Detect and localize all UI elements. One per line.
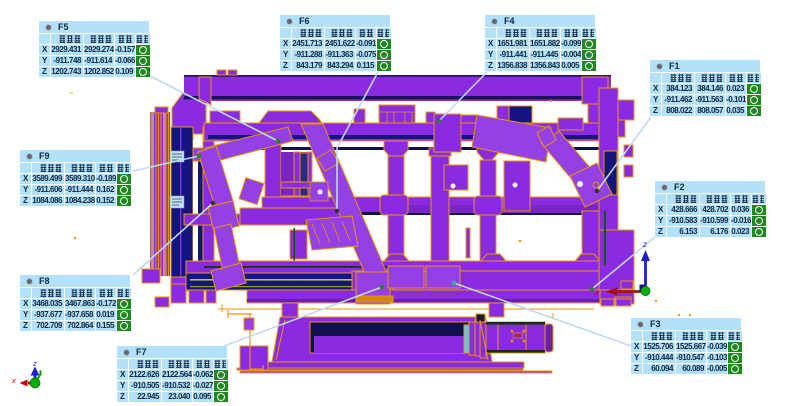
svg-text:z: z bbox=[32, 359, 37, 368]
svg-text:x: x bbox=[11, 376, 16, 385]
svg-text:z: z bbox=[642, 240, 647, 249]
